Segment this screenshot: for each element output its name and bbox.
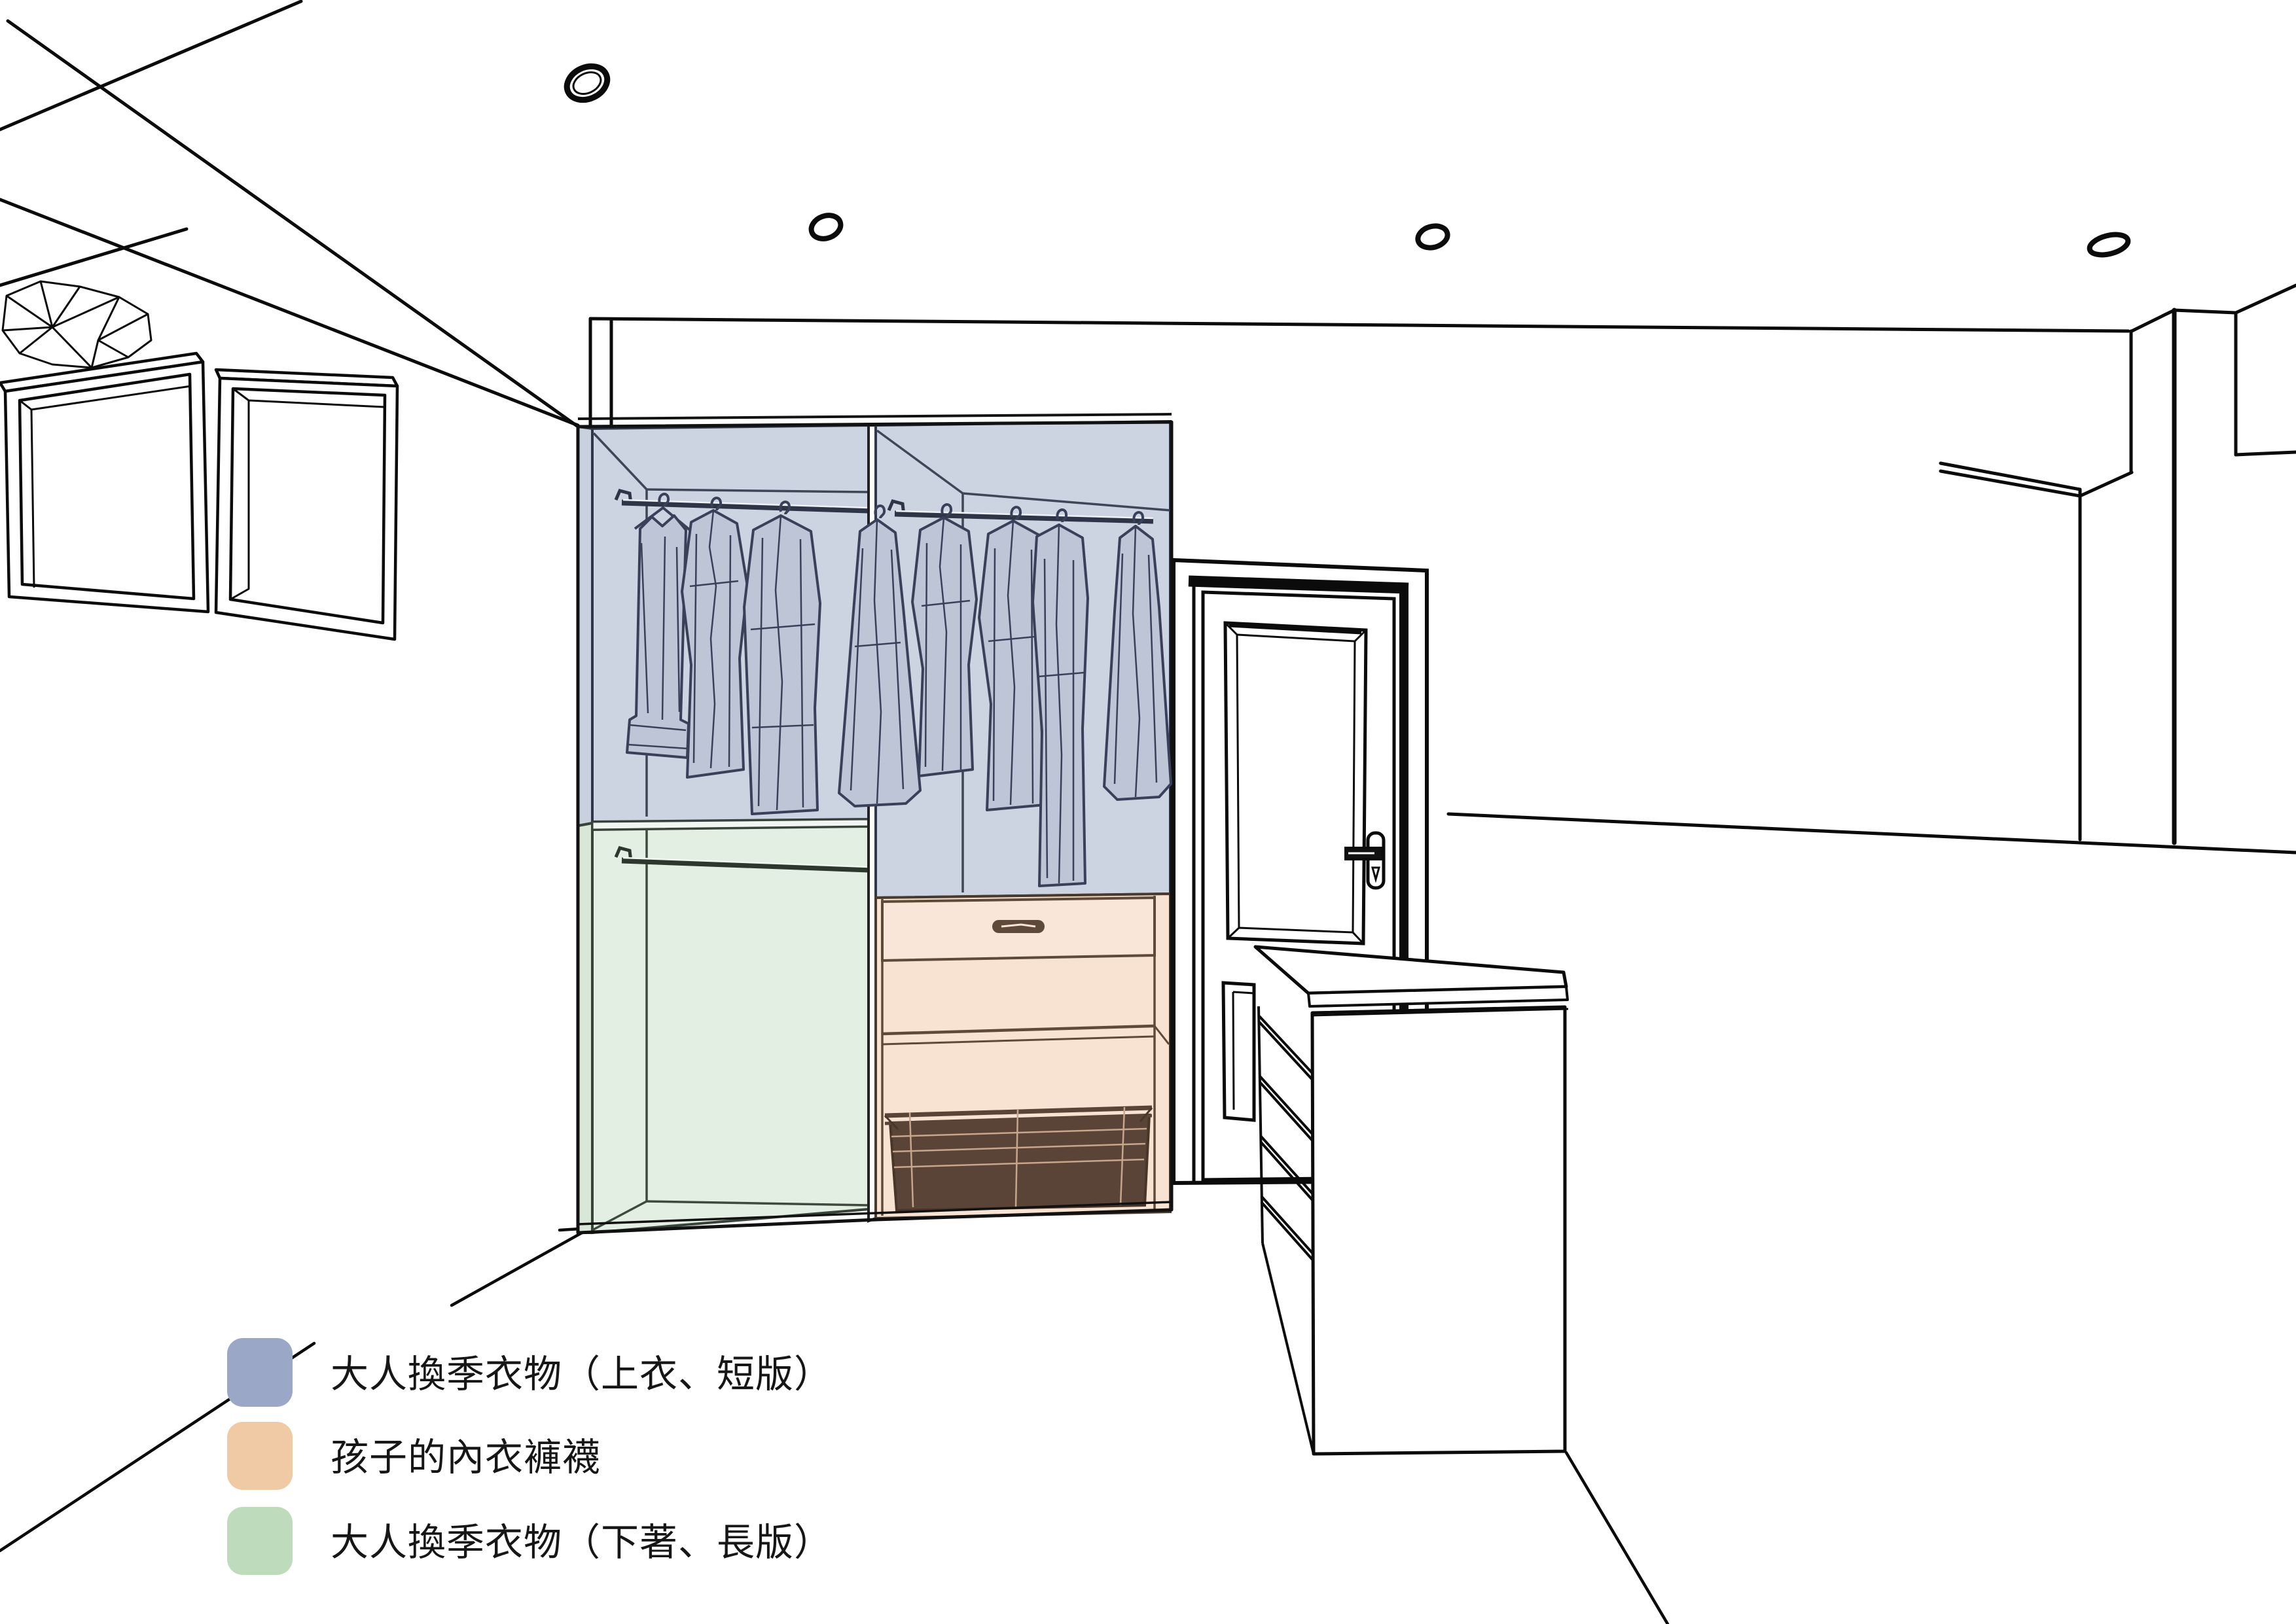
legend-item: 大人換季衣物（上衣、短版） — [227, 1338, 833, 1407]
wardrobe-side-panel-lower — [578, 823, 592, 1233]
recessed-light-icon — [2088, 231, 2130, 258]
ceiling-and-wall-lines — [0, 1, 2128, 427]
closet-room-sketch: 大人換季衣物（上衣、短版） 孩子的內衣褲襪 大人換季衣物（下著、長版） — [0, 0, 2296, 1624]
garment-coat — [744, 502, 820, 814]
legend-swatch-orange — [227, 1422, 293, 1490]
recessed-light-icon — [1416, 223, 1450, 251]
legend: 大人換季衣物（上衣、短版） 孩子的內衣褲襪 大人換季衣物（下著、長版） — [227, 1338, 833, 1575]
drawer — [882, 898, 1155, 961]
decor-faceted-object — [3, 281, 151, 368]
right-wall-beam-and-pillar — [1941, 285, 2296, 843]
garment-long-pants — [1033, 510, 1088, 886]
legend-swatch-green — [227, 1507, 293, 1575]
garment-shirt — [682, 498, 747, 777]
recessed-light-icon — [562, 60, 613, 107]
ceiling-lights — [562, 60, 2130, 258]
open-shelf-box-right — [216, 370, 397, 639]
legend-item: 大人換季衣物（下著、長版） — [227, 1507, 833, 1575]
recessed-light-icon — [808, 211, 844, 243]
legend-label: 孩子的內衣褲襪 — [331, 1435, 601, 1479]
legend-swatch-blue — [227, 1338, 293, 1407]
wall-mounted-open-shelves — [0, 281, 397, 639]
zone-adult-bottoms-long — [592, 819, 869, 1233]
half-wall-top-edge — [1448, 814, 2296, 853]
wardrobe — [578, 414, 1172, 1233]
wardrobe-side-panel-upper — [578, 427, 592, 826]
garment-shirt — [912, 504, 977, 776]
legend-item: 孩子的內衣褲襪 — [227, 1422, 601, 1490]
island-body — [1312, 1007, 1565, 1454]
legend-label: 大人換季衣物（下著、長版） — [331, 1520, 833, 1564]
legend-label: 大人換季衣物（上衣、短版） — [331, 1352, 833, 1396]
drawer-handle-icon — [992, 920, 1045, 933]
zone-kids-underwear — [876, 894, 1170, 1218]
door-casing-band-top — [1189, 581, 1408, 588]
wire-basket — [885, 1107, 1152, 1210]
open-shelf-box-left — [0, 353, 208, 612]
